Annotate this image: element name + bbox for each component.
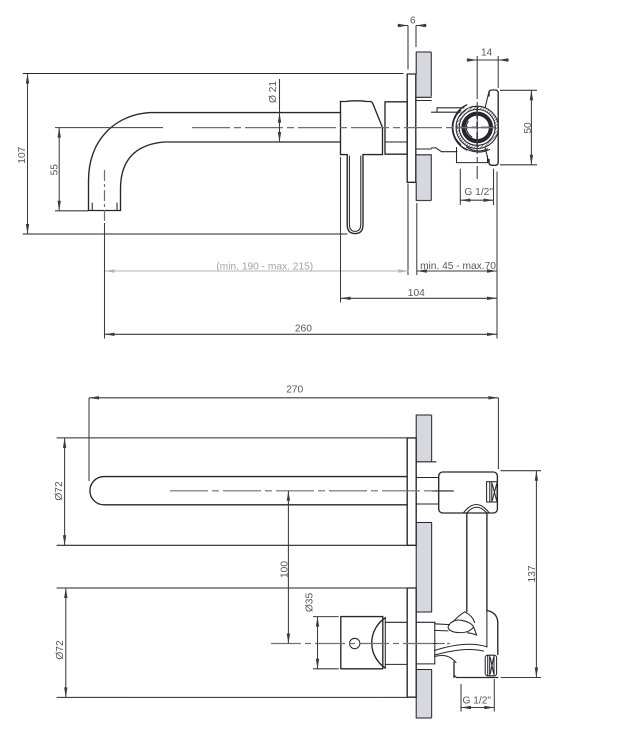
svg-text:137: 137: [527, 565, 538, 582]
svg-text:107: 107: [17, 146, 28, 163]
svg-text:260: 260: [295, 323, 312, 334]
svg-text:104: 104: [408, 288, 425, 299]
svg-text:G 1/2": G 1/2": [463, 696, 492, 707]
svg-text:270: 270: [286, 385, 303, 396]
svg-text:100: 100: [279, 561, 290, 578]
svg-text:Ø 21: Ø 21: [268, 81, 279, 103]
svg-text:(min. 190 - max. 215): (min. 190 - max. 215): [216, 261, 313, 272]
svg-text:Ø72: Ø72: [54, 481, 65, 501]
svg-text:55: 55: [50, 164, 61, 176]
svg-text:6: 6: [410, 16, 416, 27]
svg-text:14: 14: [481, 48, 493, 59]
svg-text:Ø35: Ø35: [305, 593, 316, 613]
svg-text:Ø72: Ø72: [55, 640, 66, 660]
svg-text:min. 45 - max.70: min. 45 - max.70: [420, 261, 496, 272]
svg-text:50: 50: [523, 122, 534, 134]
svg-text:G 1/2": G 1/2": [464, 187, 493, 198]
